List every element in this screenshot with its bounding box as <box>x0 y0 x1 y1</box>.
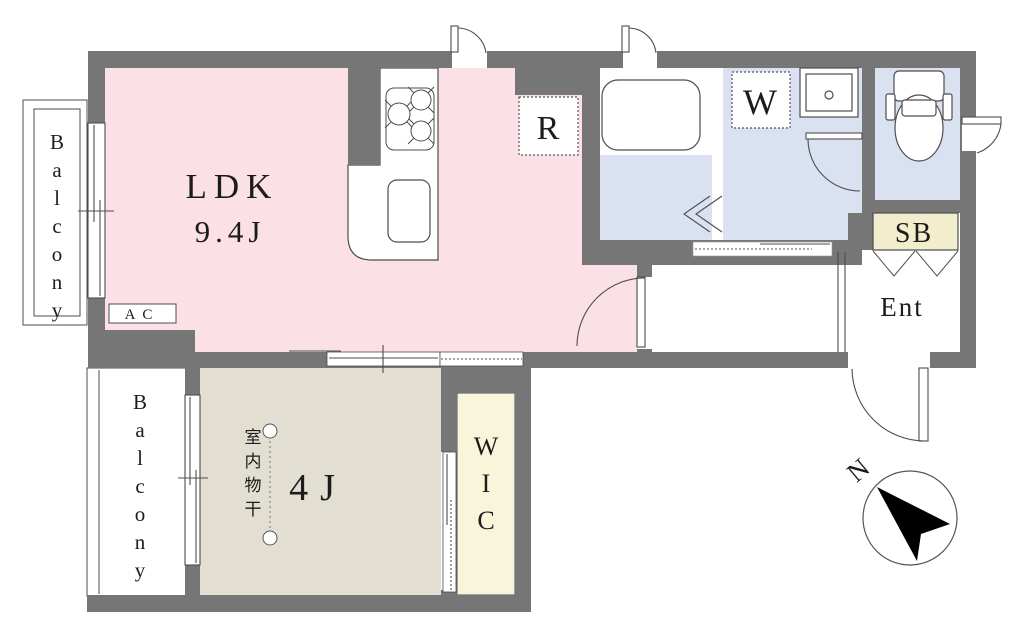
opening-entrance-door <box>848 352 930 368</box>
refrigerator-label: R <box>537 110 560 147</box>
door-swing-arc <box>458 28 486 53</box>
shoe-box-folding-doors-icon <box>873 251 958 276</box>
drying-pole-ring <box>263 531 277 545</box>
shoe-box-label: SB <box>895 218 933 249</box>
wall-right <box>960 51 976 368</box>
window-balcony-lower <box>185 395 200 565</box>
opening-toilet-door <box>962 120 976 151</box>
wic-label: WIC <box>472 432 501 543</box>
wall-wic-right <box>515 368 531 612</box>
north-compass: N <box>841 452 957 565</box>
wall-washroom-toilet <box>862 51 875 215</box>
door-swing-arc <box>629 28 656 53</box>
wall-bedroom-wic-upper <box>441 368 457 452</box>
entrance-door-leaf <box>919 368 928 441</box>
burner <box>388 103 410 125</box>
wall-ldk-corner <box>88 330 195 368</box>
entrance-label: Ent <box>880 292 924 322</box>
ldk-door-leaf <box>637 277 645 347</box>
washer-label: W <box>743 82 777 122</box>
door-leaf <box>622 26 629 52</box>
sliding-door-wic <box>443 452 456 592</box>
entrance-door-arc <box>852 369 924 441</box>
opening-top-door-1 <box>452 51 487 68</box>
wall-toilet-bottom <box>862 200 962 213</box>
burner <box>411 121 431 141</box>
ac-label: AC <box>125 307 160 323</box>
door-leaf <box>451 26 458 52</box>
opening-top-door-2 <box>623 51 657 68</box>
ldk-size-label: 9.4J <box>195 214 266 249</box>
burner <box>411 90 431 110</box>
wall-kitchen-column <box>348 51 380 165</box>
stove-icon <box>385 87 434 150</box>
wall-above-fridge <box>515 51 582 95</box>
kitchen-sink-icon <box>388 180 430 242</box>
north-label: N <box>841 452 875 488</box>
toilet-door-leaf <box>962 117 1001 124</box>
vanity-icon <box>800 68 858 117</box>
indoor-drying-label: 室内物干 <box>242 428 262 524</box>
toilet-seat <box>902 100 936 116</box>
toilet-door-arc <box>977 124 1001 153</box>
drying-pole-ring <box>263 424 277 438</box>
balcony-upper-label: Balcony <box>45 130 69 326</box>
floor-plan-canvas: N LDK 9.4J 4J R W SB Ent AC Balcony Balc… <box>0 0 1024 633</box>
bedroom-label: 4J <box>289 467 347 509</box>
floor-plan: N LDK 9.4J 4J R W SB Ent AC Balcony Balc… <box>0 0 1024 633</box>
wall-bath-left <box>582 51 600 265</box>
ldk-label: LDK <box>186 167 279 206</box>
toilet-side-right <box>943 94 952 120</box>
washroom-door-leaf <box>806 133 862 139</box>
wall-sb-left <box>848 213 873 250</box>
wall-mid-horizontal <box>88 352 976 368</box>
balcony-lower-label: Balcony <box>128 390 152 586</box>
toilet-side-left <box>886 94 895 120</box>
bathtub-icon <box>602 80 700 150</box>
wall-bottom <box>87 595 531 612</box>
